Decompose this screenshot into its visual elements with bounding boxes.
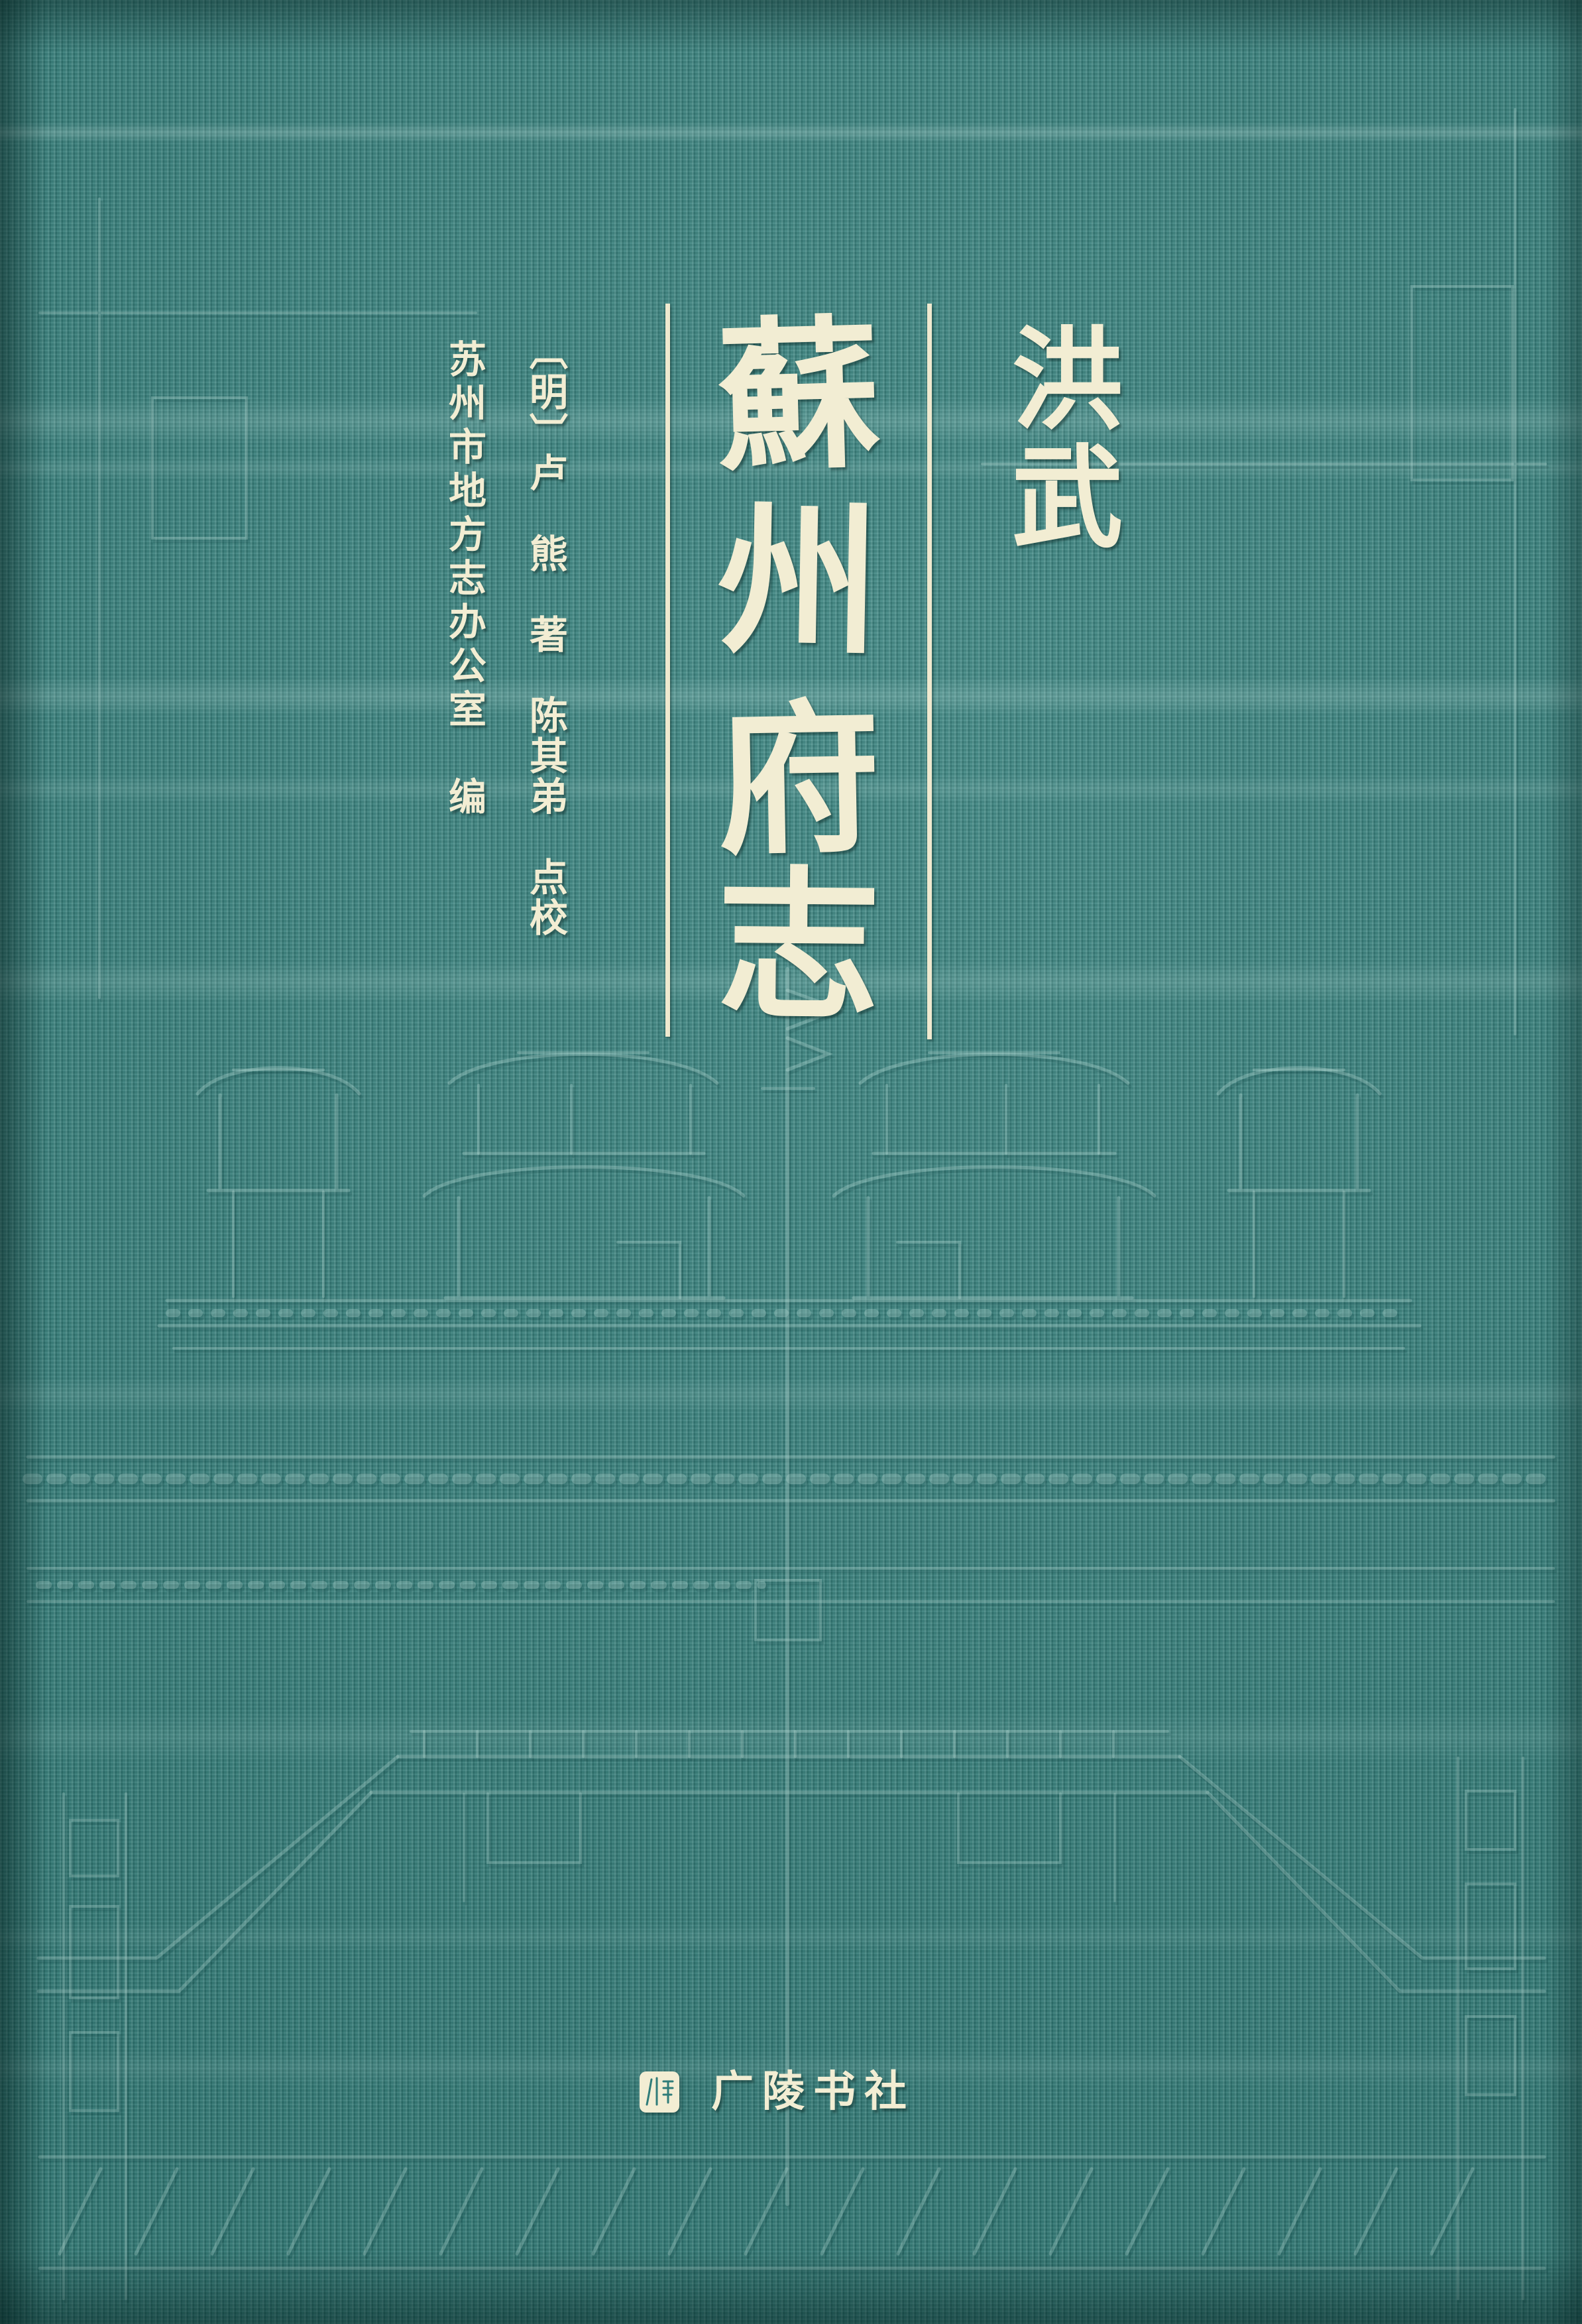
era-label: 洪武 — [1001, 321, 1112, 557]
title-rule-right — [927, 304, 932, 1039]
publisher-name: 广陵书社 — [711, 2071, 915, 2113]
publisher-seal-icon — [638, 2069, 682, 2115]
editor-line: 苏州市地方志办公室 编 — [445, 339, 483, 821]
author-byline: 〔明〕卢 熊 著 陈其弟 点校 — [526, 331, 564, 938]
publisher-block: 广陵书社 — [638, 2069, 915, 2115]
title-rule-left — [665, 304, 670, 1037]
title-char: 府 — [716, 700, 881, 865]
fabric-crease — [0, 1924, 1582, 1950]
book-cover: 洪武 蘇 州 府 志 〔明〕卢 熊 著 陈其弟 点校 苏州市地方志办公室 编 广… — [0, 0, 1582, 2324]
title-char: 蘇 — [715, 315, 881, 481]
fabric-crease — [0, 123, 1582, 143]
title-char: 志 — [716, 866, 880, 1030]
book-title: 蘇 州 府 志 — [718, 317, 880, 1029]
title-char: 州 — [716, 501, 881, 666]
fabric-crease — [0, 1712, 1582, 1762]
fabric-crease — [0, 1377, 1582, 1412]
